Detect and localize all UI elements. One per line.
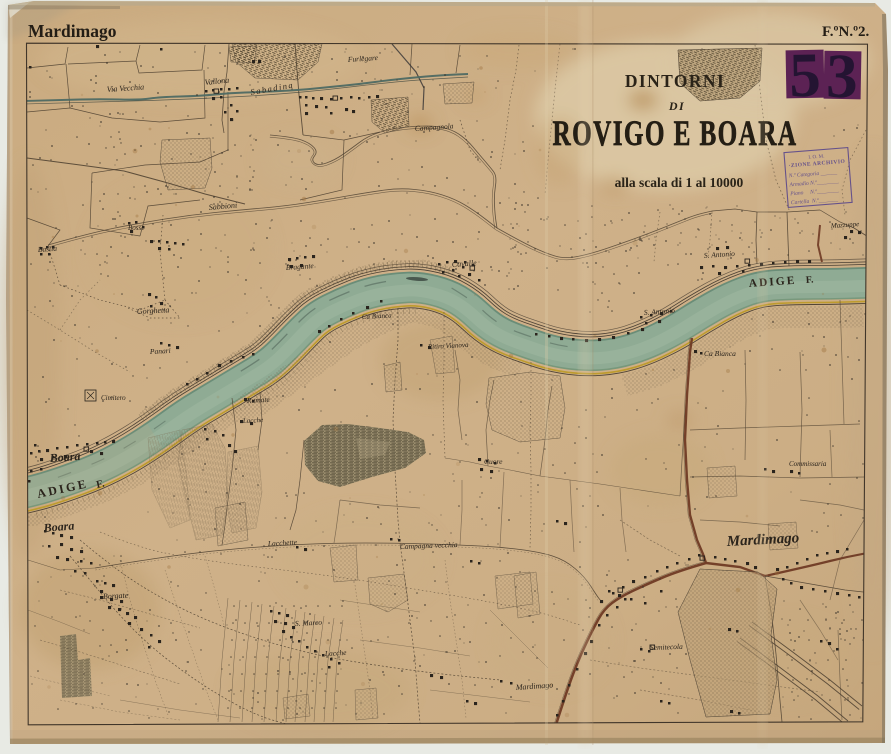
svg-text:Lacchette: Lacchette [267,537,298,548]
svg-text:Cuore: Cuore [484,457,503,466]
svg-text:Lacche: Lacche [324,648,348,658]
svg-text:Borgate: Borgate [103,591,129,601]
svg-text:Gorghetta: Gorghetta [137,305,170,316]
svg-text:DINTORNI: DINTORNI [625,71,725,91]
svg-text:Mardimago: Mardimago [28,21,117,41]
svg-text:Cimitero: Cimitero [101,394,126,402]
svg-text:S. Marco: S. Marco [295,618,323,628]
svg-text:Commissaria: Commissaria [789,460,827,468]
svg-text:Cavalle: Cavalle [452,258,478,269]
svg-text:Bosse: Bosse [128,224,144,232]
svg-text:F.: F. [805,274,814,286]
svg-text:DI: DI [668,99,685,113]
svg-text:Bastia: Bastia [38,244,58,254]
svg-text:Ca Bianca: Ca Bianca [362,311,393,321]
svg-text:alla scala di 1 al 10000: alla scala di 1 al 10000 [615,175,744,190]
svg-text:Boara: Boara [48,449,81,465]
svg-text:5: 5 [789,40,822,111]
svg-text:3: 3 [826,41,859,112]
svg-text:Ca Bianca: Ca Bianca [704,349,736,358]
svg-text:Panari: Panari [149,346,171,356]
svg-text:Lacche: Lacche [242,416,264,425]
svg-text:Semitecola: Semitecola [650,642,683,652]
svg-text:Boara: Boara [42,518,75,535]
svg-text:Ramate: Ramate [246,395,271,405]
svg-text:F.ºN.º2.: F.ºN.º2. [822,24,870,40]
